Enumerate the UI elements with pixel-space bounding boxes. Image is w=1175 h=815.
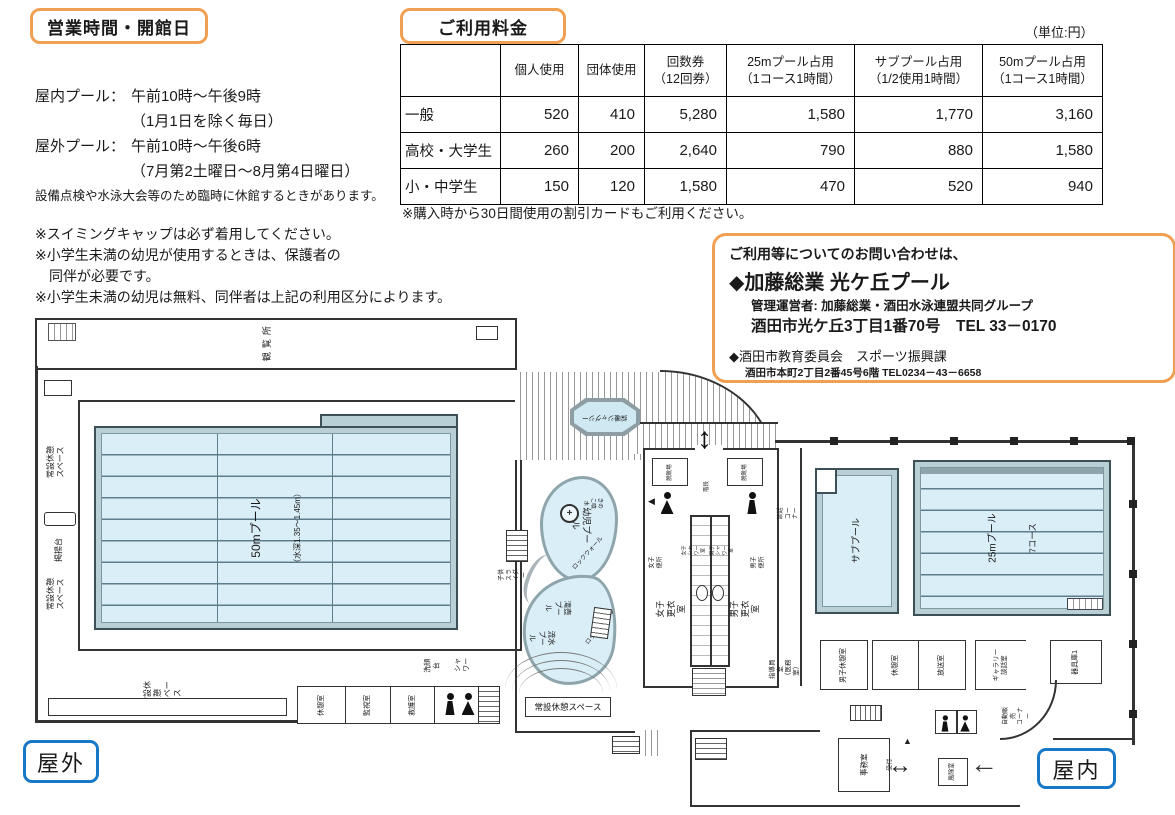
entry-hatch [640,730,662,756]
hours-entry: （7月第2土曜日～8月第4日曜日） [35,159,395,184]
observation-hatch [48,323,76,341]
hours-block: 屋内プール： 午前10時～午後9時 （1月1日を除く毎日） 屋外プール： 午前1… [35,84,395,204]
observation-door [476,326,498,340]
jacuzzi-label: 採暖ジャグジー [570,398,640,436]
indoor-stairs [695,738,727,760]
fees-col-header: 回数券 （12回券） [645,45,727,97]
jacuzzi: 採暖ジャグジー [570,398,640,436]
outdoor-stairs [478,686,500,724]
pool-information-flyer: 営業時間・開館日 ご利用料金 （単位:円） 屋内プール： 午前10時～午後9時 … [0,0,1175,815]
hours-title-box: 営業時間・開館日 [30,8,208,44]
wash-stand-label: 洗顔台 [426,650,440,682]
windbreak-room: 風除室 [938,758,968,786]
fees-header-row: 個人使用 団体使用 回数券 （12回券） 25mプール占用 （1コース1時間） … [401,45,1103,97]
fees-row-label: 一般 [401,97,501,133]
hours-entry-value: 午前10時～午後9時 [131,84,261,109]
mushroom-fountain-label: きのこ噴水 [586,486,598,520]
bench [44,380,72,396]
entrance-arrow-icon: ↕ [697,424,712,454]
middle-steps [612,736,640,754]
female-pictogram-icon [660,492,674,516]
fees-col-header: 個人使用 [501,45,579,97]
womens-changing-label: 女子更衣室 [662,576,680,642]
female-pictogram-icon [961,715,970,729]
rest-room-indoor: 休憩室 [872,640,920,690]
shoe-removal-room: 脱靴場 [727,458,763,486]
wc-fixture [696,585,708,601]
caution-line: ※スイミングキャップは必ず着用してください。 [35,224,465,245]
fees-row: 高校・大学生 260 200 2,640 790 880 1,580 [401,133,1103,169]
rock-wall-label: ロックウォール [566,542,610,552]
pool-25m-label: 25mプール 7コース [915,462,1109,614]
female-pictogram-icon [461,693,475,717]
facility-floor-plan: 観覧所 常設休憩 スペース 掲揚台 常設休憩 スペース 50mプール （水深1.… [0,290,1175,815]
mens-shower-label: 男子シャワー室 [716,526,728,574]
lounge-corner-label: 談話コーナー [782,488,796,538]
first-aid-room: 救護室 [390,686,436,724]
mens-rest-room: 男子休憩室 [820,640,868,690]
rest-space-label: 常設休憩 スペース [38,416,74,508]
middle-bottom-wall [515,731,635,733]
fees-title: ご利用料金 [438,14,528,39]
hours-entry: 屋内プール： 午前10時～午後9時 [35,84,395,109]
fees-note: ※購入時から30日間使用の割引カードもご利用ください。 [402,202,752,222]
shoe-removal-room: 脱靴場 [652,458,688,486]
pool-25m: 25mプール 7コース [913,460,1111,616]
fees-row-label: 高校・大学生 [401,133,501,169]
womens-shower-label: 女子シャワー室 [688,526,700,574]
pool-50m-label: 50mプール （水深1.35～1.45m） [96,428,456,628]
male-pictogram-icon [443,693,457,717]
caution-line: ※小学生未満の幼児が使用するときは、保護者の [35,245,465,266]
vending-corner-label: 自動販売 コーナー [1008,694,1028,738]
fees-unit-label: （単位:円） [1025,22,1094,41]
broadcast-room: 放送室 [918,640,966,690]
rest-space-label: 常設休憩 スペース [38,548,74,640]
two-way-arrow-icon: ↔ [888,752,912,780]
small-toilet-rooms [935,710,977,734]
locker-bank [692,668,726,696]
mens-changing-label: 男子更衣室 [736,576,754,642]
fees-title-box: ご利用料金 [400,8,566,44]
sub-pool-label: サブプール [817,470,897,612]
mens-toilet-label: 男子便所 [752,542,766,582]
pool-50m: 50mプール （水深1.35～1.45m） [94,426,458,630]
fees-col-header: 団体使用 [579,45,645,97]
stairs-label: 階段 [701,470,715,502]
hall-right-wall [1132,440,1135,745]
indoor-bottom-wall [690,805,1020,807]
hours-entry: （1月1日を除く毎日） [35,109,395,134]
fees-table: 個人使用 団体使用 回数券 （12回券） 25mプール占用 （1コース1時間） … [400,44,1103,205]
fees-row-label: 小・中学生 [401,169,501,205]
hours-note: 設備点検や水泳大会等のため臨時に休館するときがあります。 [35,185,395,204]
sub-pool: サブプール [815,468,899,614]
indoor-stairs [850,705,882,721]
outdoor-toilet [434,686,480,724]
entrance-arrow-icon: ← [970,748,998,780]
rest-room-outdoor: 休憩室 [297,686,347,724]
fees-col-header: 25mプール占用 （1コース1時間） [727,45,855,97]
pool-steps [1067,598,1103,610]
monitor-room: 監視室 [345,686,392,724]
fees-row: 小・中学生 150 120 1,580 470 520 940 [401,169,1103,205]
wc-fixture [712,585,724,601]
shower-label: シャワー [456,646,470,684]
flag-stand [44,512,76,526]
contact-intro: ご利用等についてのお問い合わせは、 [729,244,1159,264]
male-pictogram-icon [745,492,759,516]
corridor-wall [800,448,802,686]
male-pictogram-icon [941,715,950,729]
hours-entry: 屋外プール： 午前10時～午後6時 [35,134,395,159]
fees-row: 一般 520 410 5,280 1,580 1,770 3,160 [401,97,1103,133]
rest-space-box: 常設休憩スペース [525,697,611,717]
indoor-badge: 屋内 [1037,748,1116,789]
fees-col-header: サブプール占用 （1/2使用1時間） [855,45,983,97]
office-room: 事務室 [838,738,890,792]
observation-label: 観覧所 [238,318,298,366]
outdoor-badge: 屋外 [23,740,99,783]
instructor-room-label: 指導員室 （医務室） [775,642,795,696]
waterfall-pool-label: 滝壺プール [550,584,566,632]
kids-slider-label: 子供スライダー [508,552,520,598]
fees-col-header: 50mプール占用 （1コース1時間） [983,45,1103,97]
hours-title: 営業時間・開館日 [47,14,191,39]
equipment-storage: 器具庫1 [1050,640,1102,684]
long-bench [48,698,287,716]
up-arrow-icon: ▲ [903,736,912,746]
fees-col-header [401,45,501,97]
caution-line: 同伴が必要です。 [35,266,465,287]
hours-entry-label: 屋内プール： [35,84,131,109]
arrow-icon: ◀ [648,496,655,507]
